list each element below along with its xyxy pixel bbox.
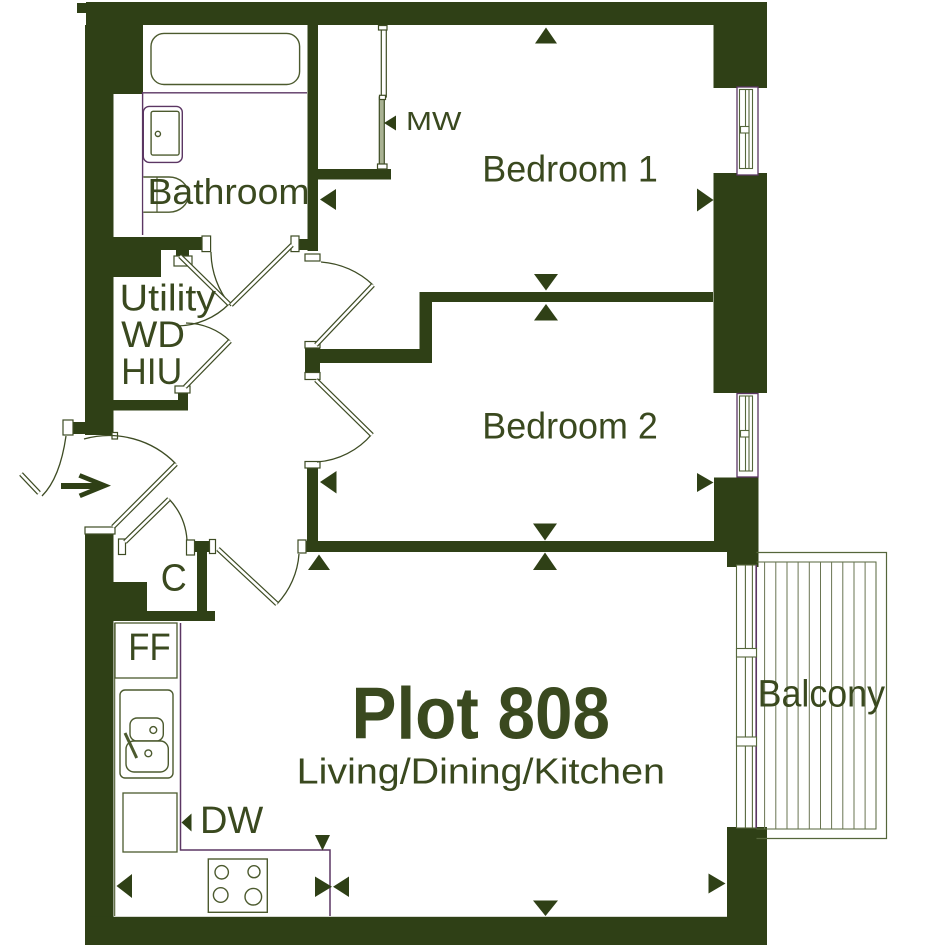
svg-text:FF: FF [128, 627, 170, 669]
svg-text:Utility: Utility [120, 278, 217, 319]
svg-text:C: C [161, 558, 187, 600]
svg-text:Plot 808: Plot 808 [352, 674, 611, 755]
svg-text:Bathroom: Bathroom [148, 171, 310, 212]
svg-text:Balcony: Balcony [758, 674, 885, 716]
svg-text:Bedroom 1: Bedroom 1 [482, 149, 658, 190]
svg-text:DW: DW [200, 800, 263, 842]
svg-text:Bedroom 2: Bedroom 2 [482, 406, 658, 447]
svg-text:WD: WD [121, 314, 185, 355]
svg-text:MW: MW [406, 106, 462, 136]
svg-text:HIU: HIU [121, 351, 182, 392]
svg-text:Living/Dining/Kitchen: Living/Dining/Kitchen [297, 751, 665, 792]
